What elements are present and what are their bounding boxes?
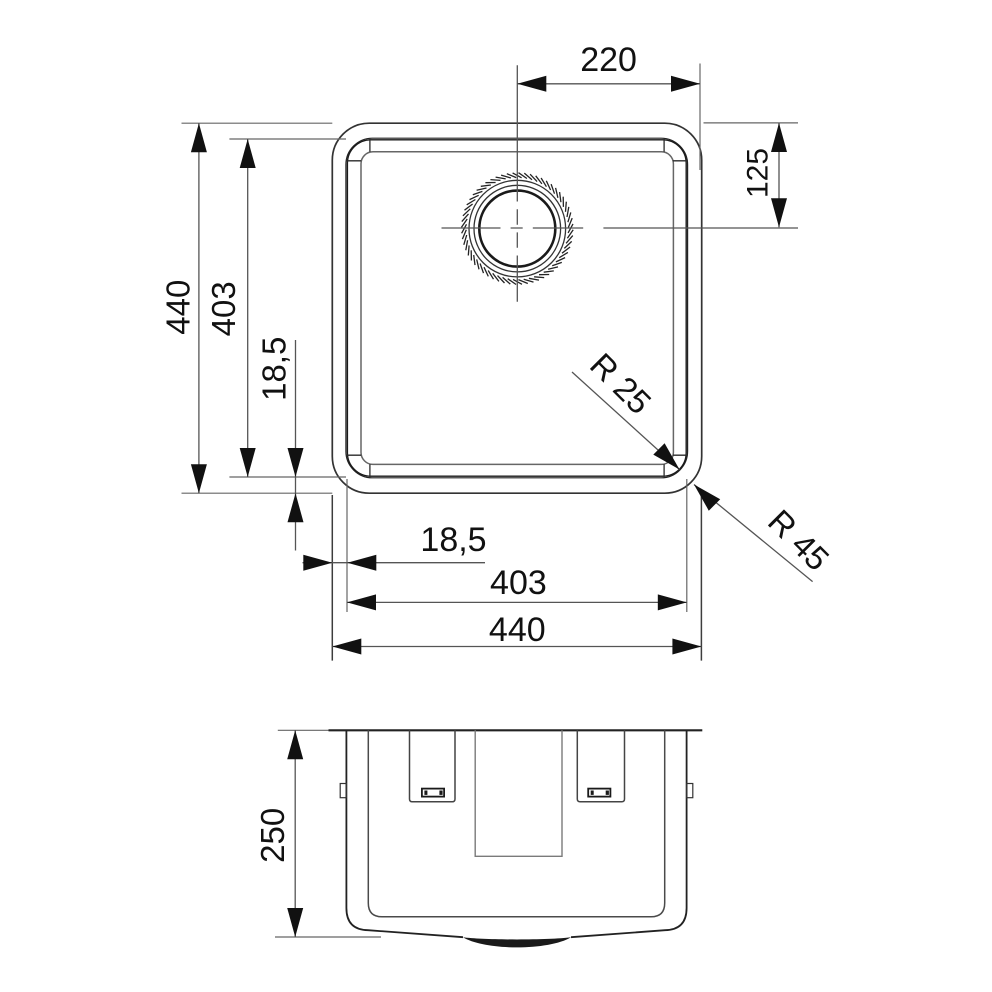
svg-text:250: 250	[254, 808, 291, 863]
svg-text:403: 403	[490, 564, 547, 602]
svg-text:440: 440	[489, 611, 546, 649]
svg-text:220: 220	[580, 41, 637, 79]
svg-text:403: 403	[205, 281, 242, 336]
svg-text:18,5: 18,5	[420, 521, 486, 559]
svg-text:125: 125	[742, 148, 775, 198]
svg-text:440: 440	[160, 280, 197, 335]
svg-text:18,5: 18,5	[255, 337, 292, 401]
